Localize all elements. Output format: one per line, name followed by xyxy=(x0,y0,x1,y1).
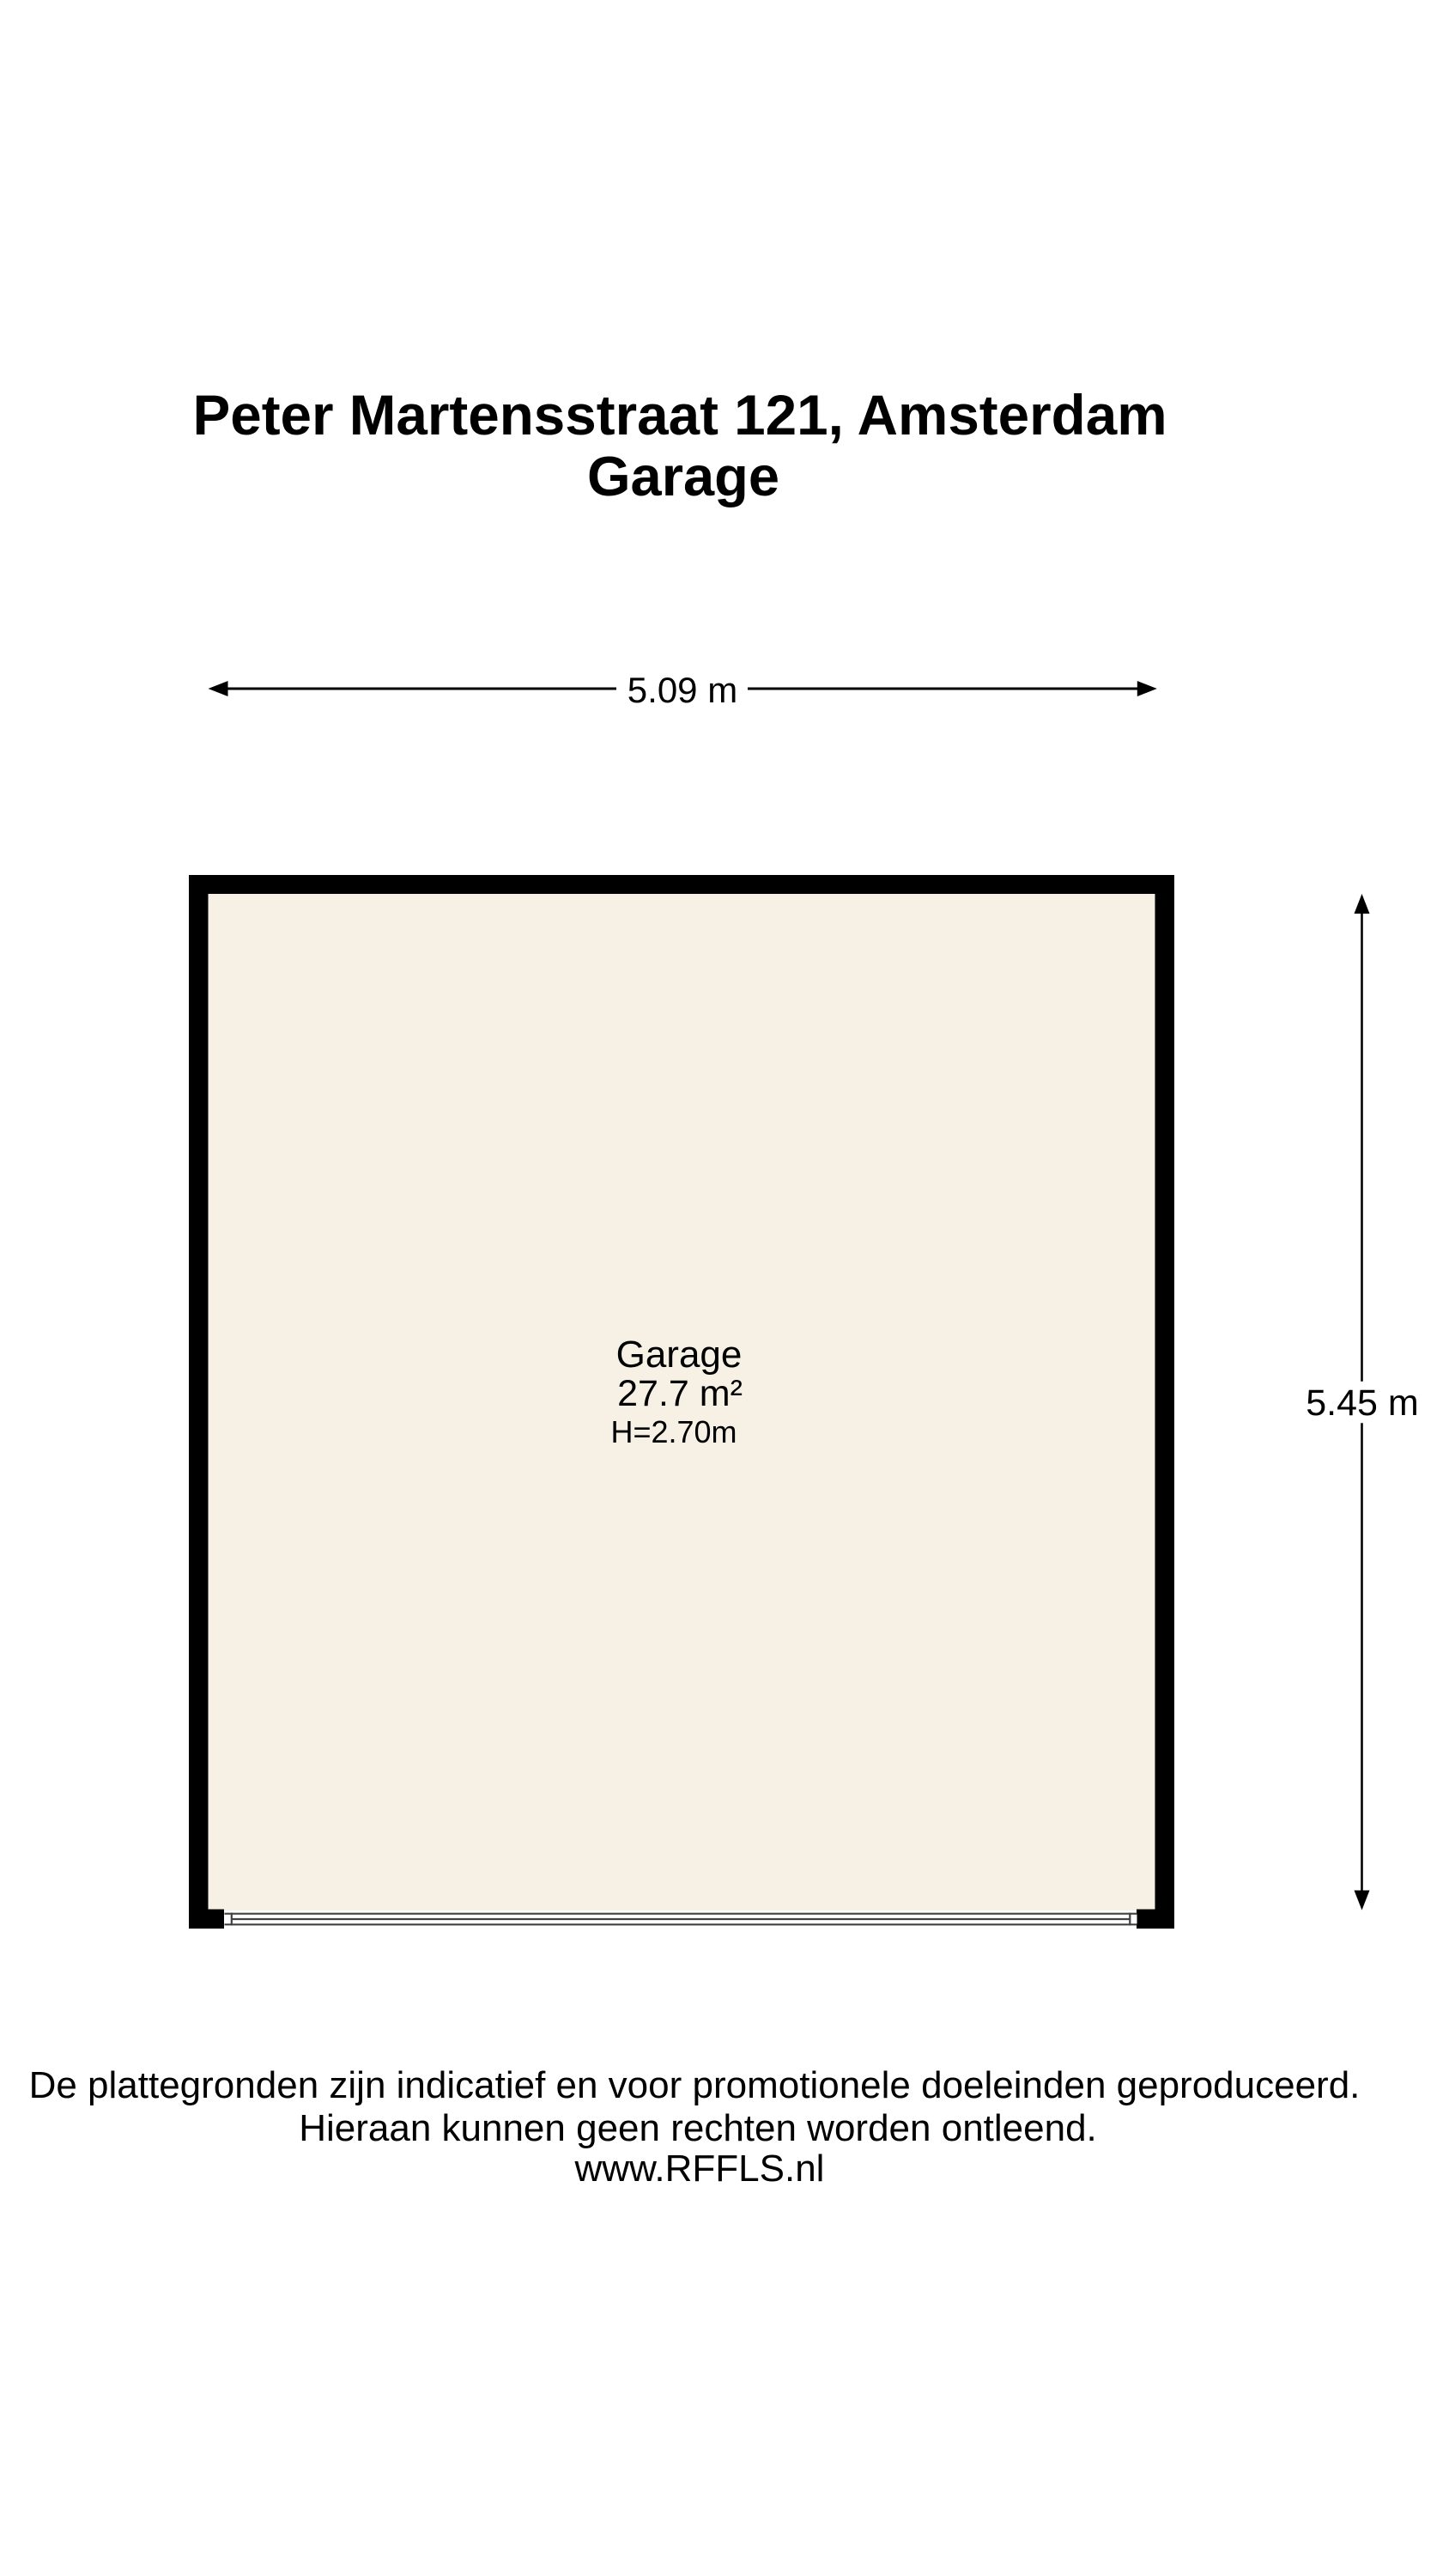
svg-text:Garage: Garage xyxy=(616,1334,743,1376)
svg-text:5.45 m: 5.45 m xyxy=(1306,1382,1418,1424)
svg-text:5.09 m: 5.09 m xyxy=(627,670,737,710)
svg-text:Peter Martensstraat 121, Amste: Peter Martensstraat 121, Amsterdam xyxy=(192,384,1167,447)
svg-text:H=2.70m: H=2.70m xyxy=(610,1414,737,1449)
svg-text:De plattegronden zijn indicati: De plattegronden zijn indicatief en voor… xyxy=(29,2064,1361,2106)
svg-text:www.RFFLS.nl: www.RFFLS.nl xyxy=(574,2148,825,2190)
svg-text:Garage: Garage xyxy=(587,445,779,507)
svg-text:Hieraan kunnen geen rechten wo: Hieraan kunnen geen rechten worden ontle… xyxy=(299,2107,1097,2149)
svg-text:27.7 m²: 27.7 m² xyxy=(617,1373,743,1414)
